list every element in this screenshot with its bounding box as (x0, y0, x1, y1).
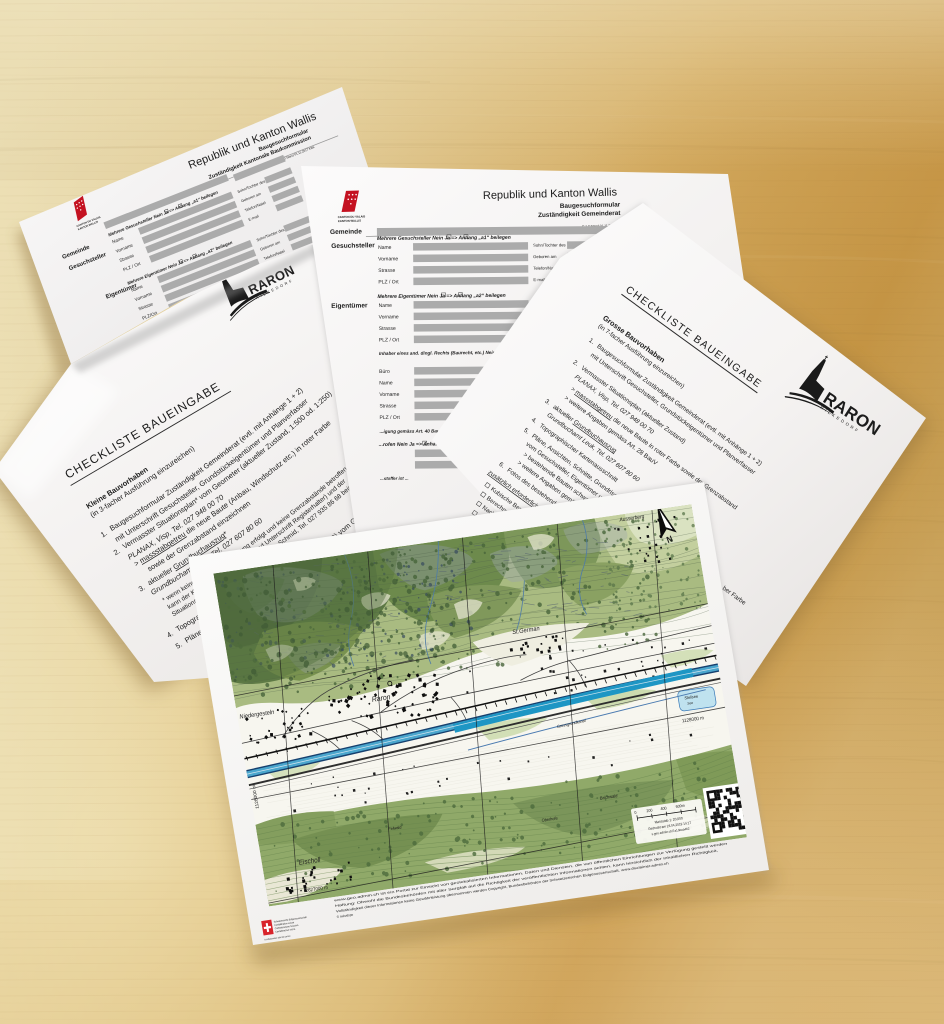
svg-text:Vorname: Vorname (379, 392, 399, 398)
svg-text:...stoffer ist ...: ...stoffer ist ... (380, 476, 409, 481)
svg-text:Geboren am: Geboren am (533, 254, 557, 259)
svg-text:Strasse: Strasse (378, 268, 395, 274)
svg-text:Sohn/Tochter des: Sohn/Tochter des (533, 242, 566, 247)
svg-text:Name: Name (378, 245, 392, 251)
svg-text:Name: Name (379, 303, 393, 309)
svg-text:400: 400 (660, 806, 667, 811)
svg-text:Strasse: Strasse (379, 403, 396, 409)
svg-text:KANTON WALLIS: KANTON WALLIS (338, 218, 361, 223)
svg-text:PLZ / Ort: PLZ / Ort (378, 279, 399, 285)
svg-text:PLZ / Ort: PLZ / Ort (379, 337, 400, 343)
svg-text:200: 200 (646, 808, 653, 813)
svg-text:PLZ / Ort: PLZ / Ort (380, 415, 401, 421)
svg-text:Büro: Büro (379, 369, 390, 375)
svg-text:Eigentümer: Eigentümer (331, 302, 368, 310)
svg-text:Gesuchsteller: Gesuchsteller (331, 242, 375, 250)
svg-text:Name: Name (379, 380, 393, 386)
svg-text:Mehrere Gesuchsteller Nein: Mehrere Gesuchsteller Nein Ja => Anhang … (377, 235, 511, 242)
svg-text:See: See (687, 701, 694, 706)
svg-text:Vorname: Vorname (379, 314, 399, 320)
svg-text:Gemeinde: Gemeinde (330, 228, 362, 236)
svg-text:Strasse: Strasse (379, 326, 396, 332)
svg-text:Vorname: Vorname (378, 256, 398, 262)
